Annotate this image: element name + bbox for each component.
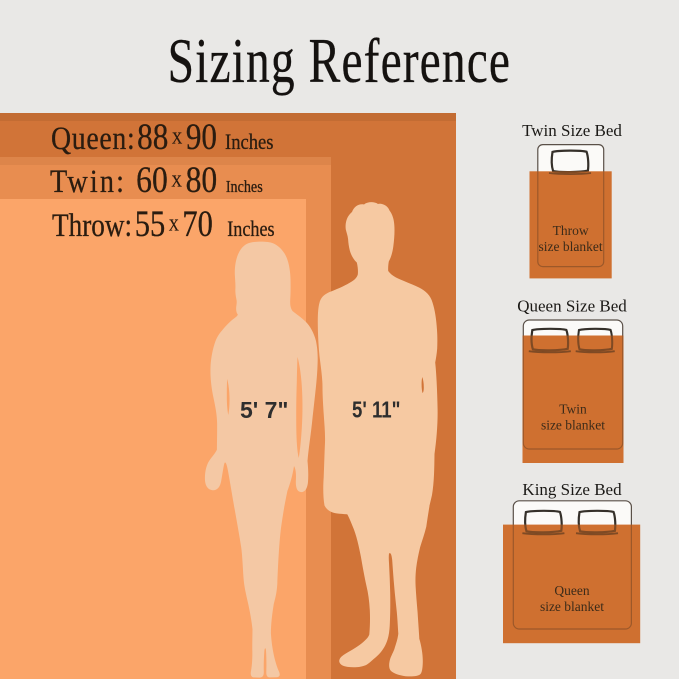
svg-text:Twin Size Bed: Twin Size Bed <box>522 121 622 140</box>
svg-text:Queen: Queen <box>554 583 589 598</box>
svg-text:size blanket: size blanket <box>541 418 605 433</box>
svg-text:size blanket: size blanket <box>540 599 604 614</box>
svg-text:Queen Size Bed: Queen Size Bed <box>517 297 627 316</box>
svg-text:Throw: Throw <box>553 223 589 238</box>
svg-text:King Size Bed: King Size Bed <box>522 480 622 499</box>
svg-text:size blanket: size blanket <box>539 239 603 254</box>
svg-text:Twin: Twin <box>559 402 587 417</box>
